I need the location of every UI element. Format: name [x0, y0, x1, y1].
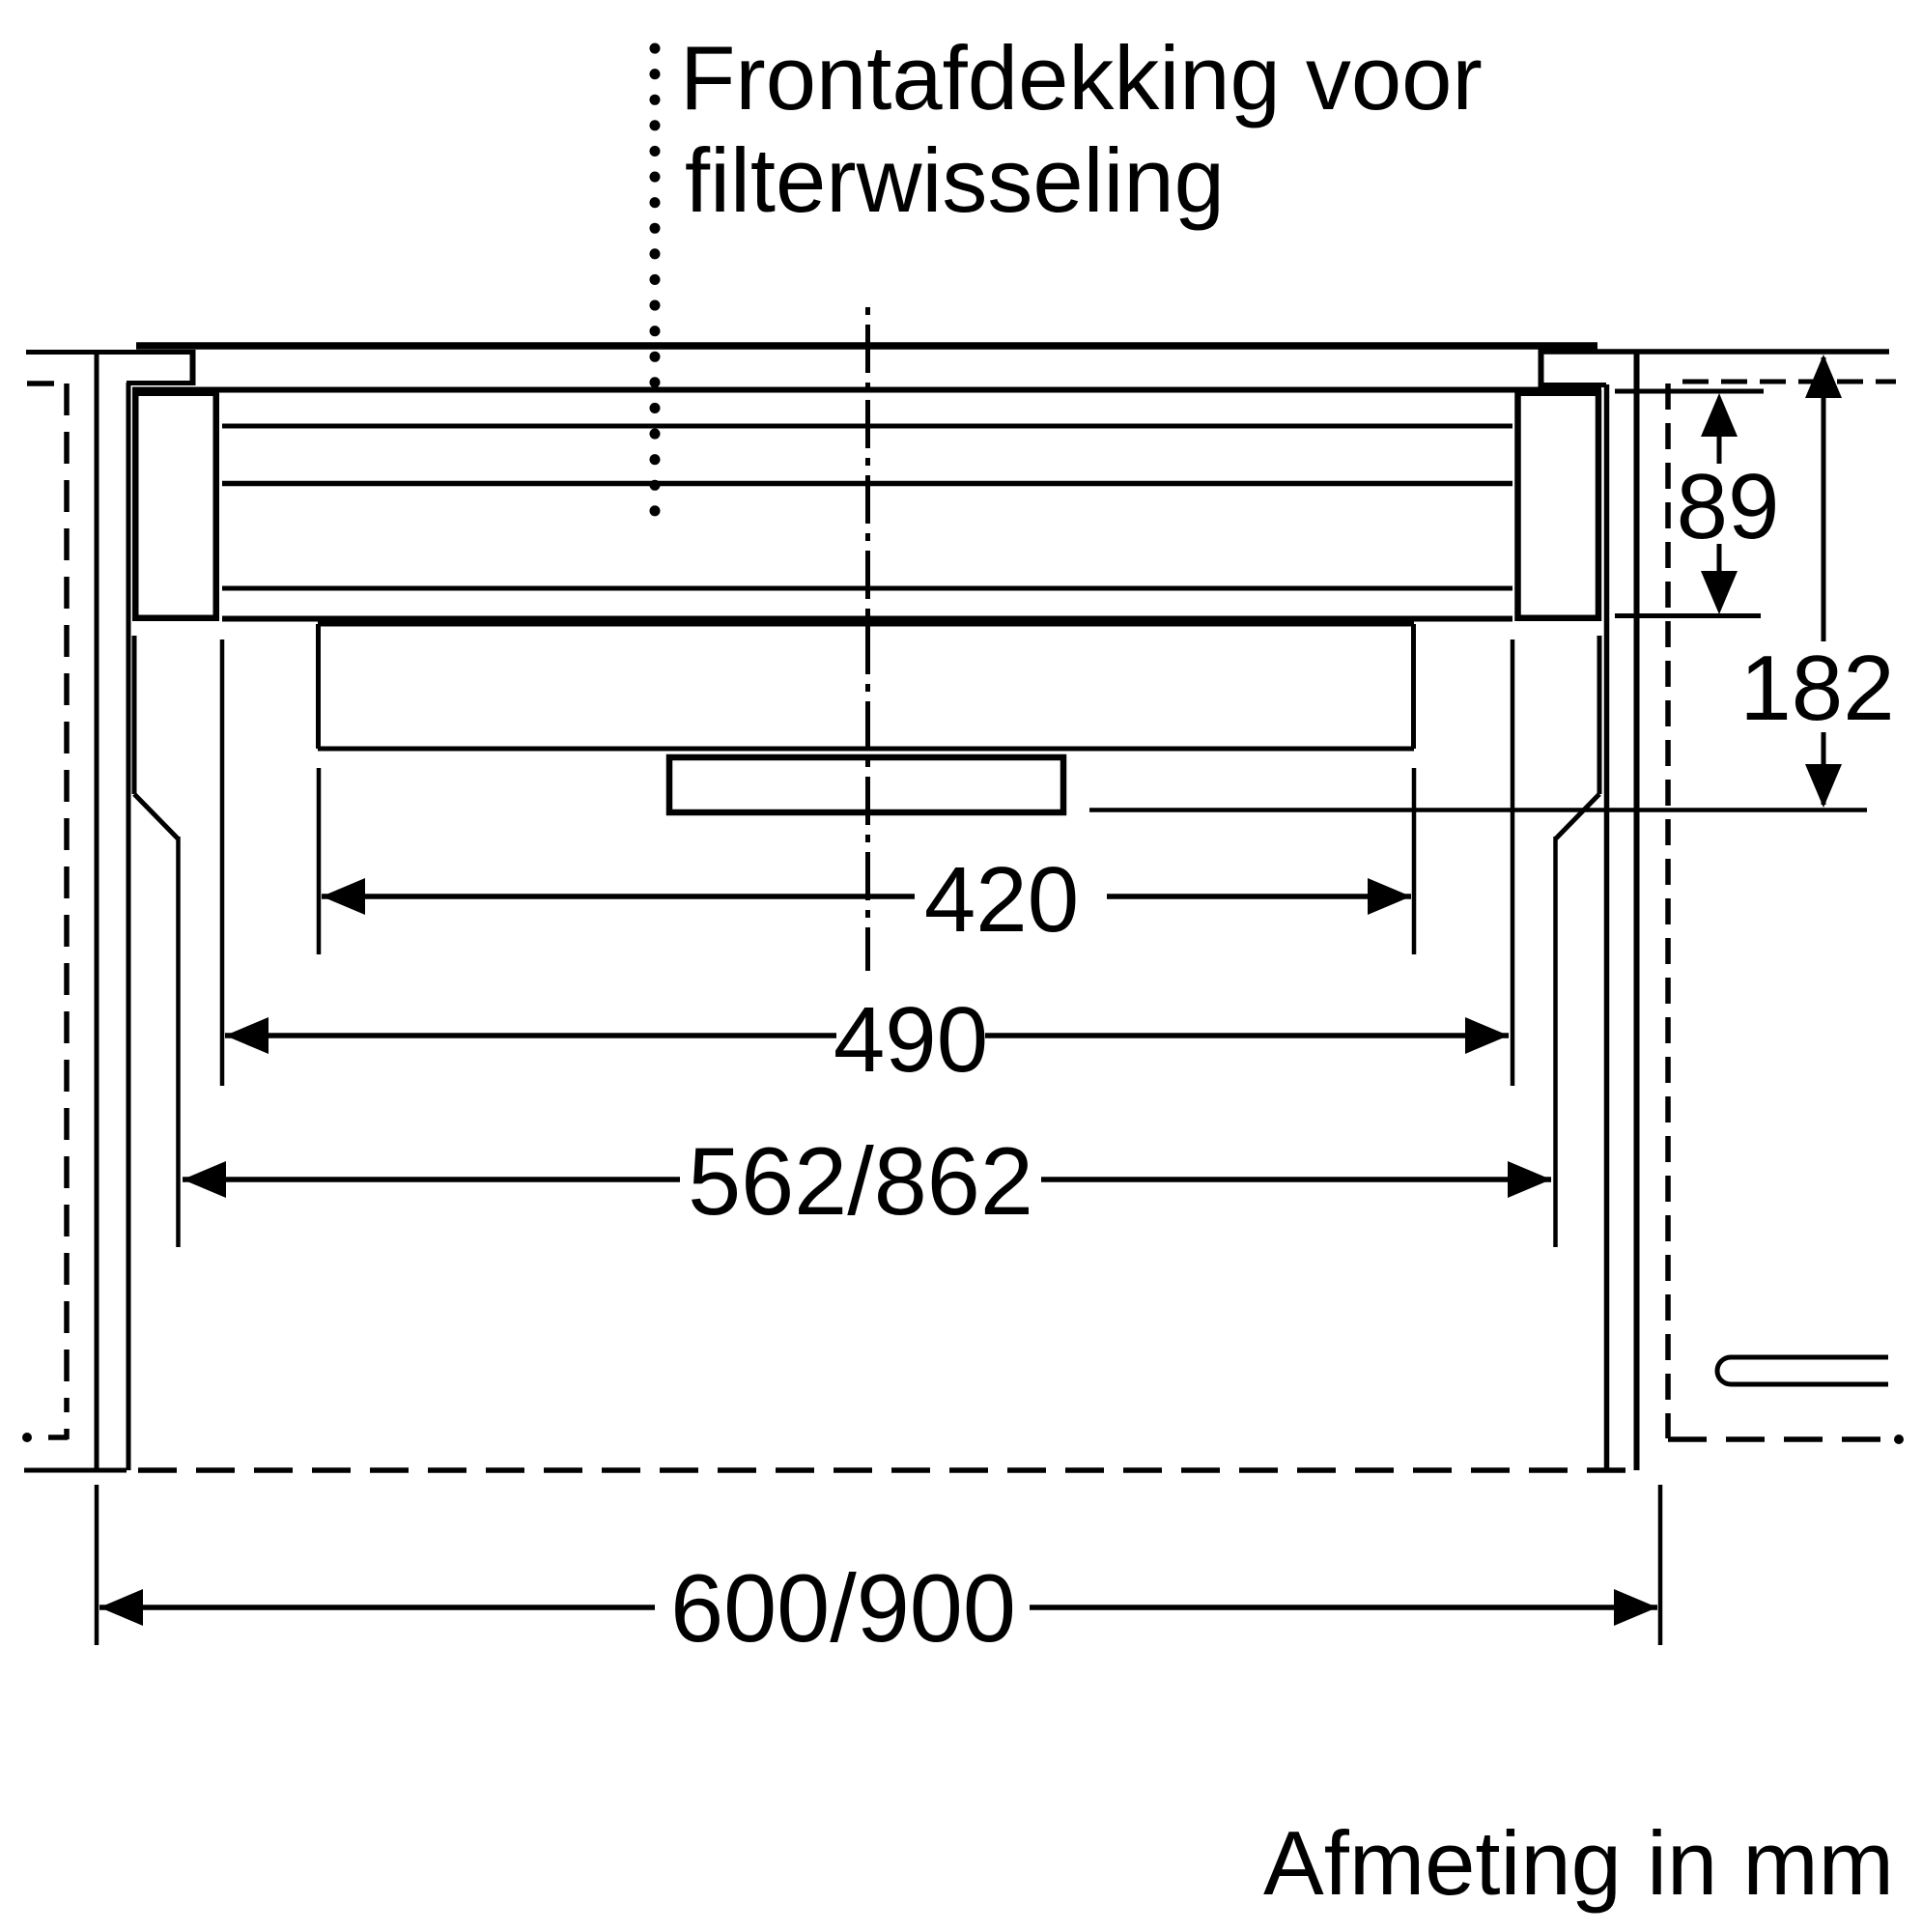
svg-text:420: 420 — [924, 848, 1079, 952]
svg-text:490: 490 — [834, 988, 988, 1092]
svg-text:89: 89 — [1677, 455, 1780, 558]
svg-text:Afmeting in mm: Afmeting in mm — [1263, 1812, 1894, 1914]
svg-text:182: 182 — [1739, 637, 1894, 740]
svg-text:562/862: 562/862 — [688, 1127, 1033, 1235]
svg-text:Frontafdekking voor: Frontafdekking voor — [680, 27, 1483, 128]
svg-text:filterwisseling: filterwisseling — [685, 129, 1225, 231]
svg-text:600/900: 600/900 — [670, 1554, 1016, 1662]
